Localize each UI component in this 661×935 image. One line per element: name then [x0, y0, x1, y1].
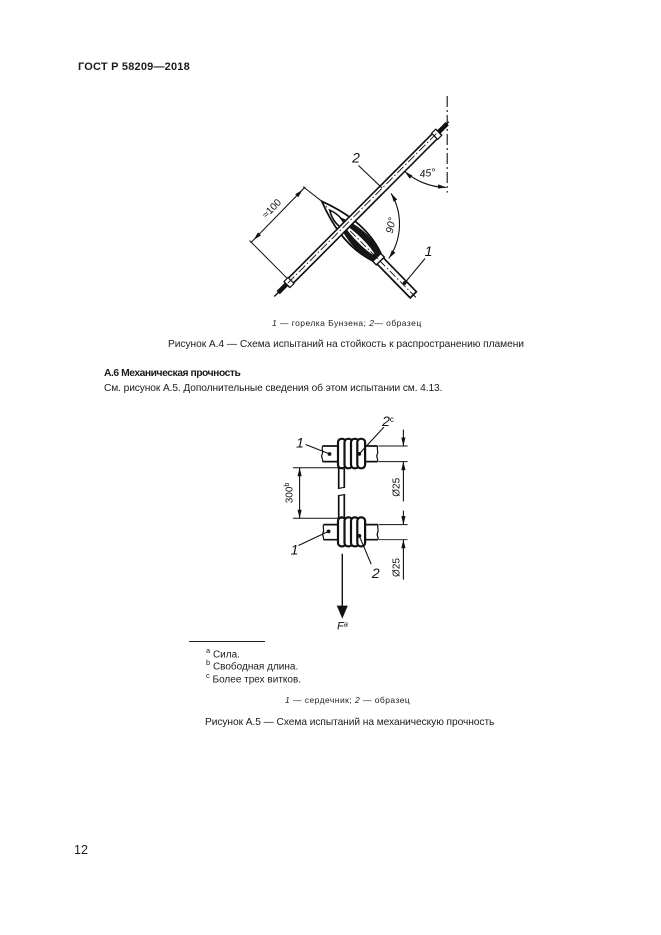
svg-text:Ø25: Ø25: [391, 558, 402, 577]
svg-text:2: 2: [351, 149, 360, 165]
svg-text:1: 1: [291, 542, 299, 558]
svg-text:45°: 45°: [419, 166, 436, 180]
svg-text:1: 1: [296, 435, 304, 451]
svg-text:300b: 300b: [284, 483, 296, 504]
svg-text:Ø25: Ø25: [391, 477, 402, 496]
svg-text:1: 1: [425, 243, 433, 259]
svg-text:2: 2: [371, 565, 380, 581]
svg-text:90°: 90°: [384, 216, 399, 234]
svg-text:≈100: ≈100: [261, 197, 285, 221]
svg-text:Fa: Fa: [337, 620, 348, 633]
svg-text:2c: 2c: [381, 413, 394, 429]
